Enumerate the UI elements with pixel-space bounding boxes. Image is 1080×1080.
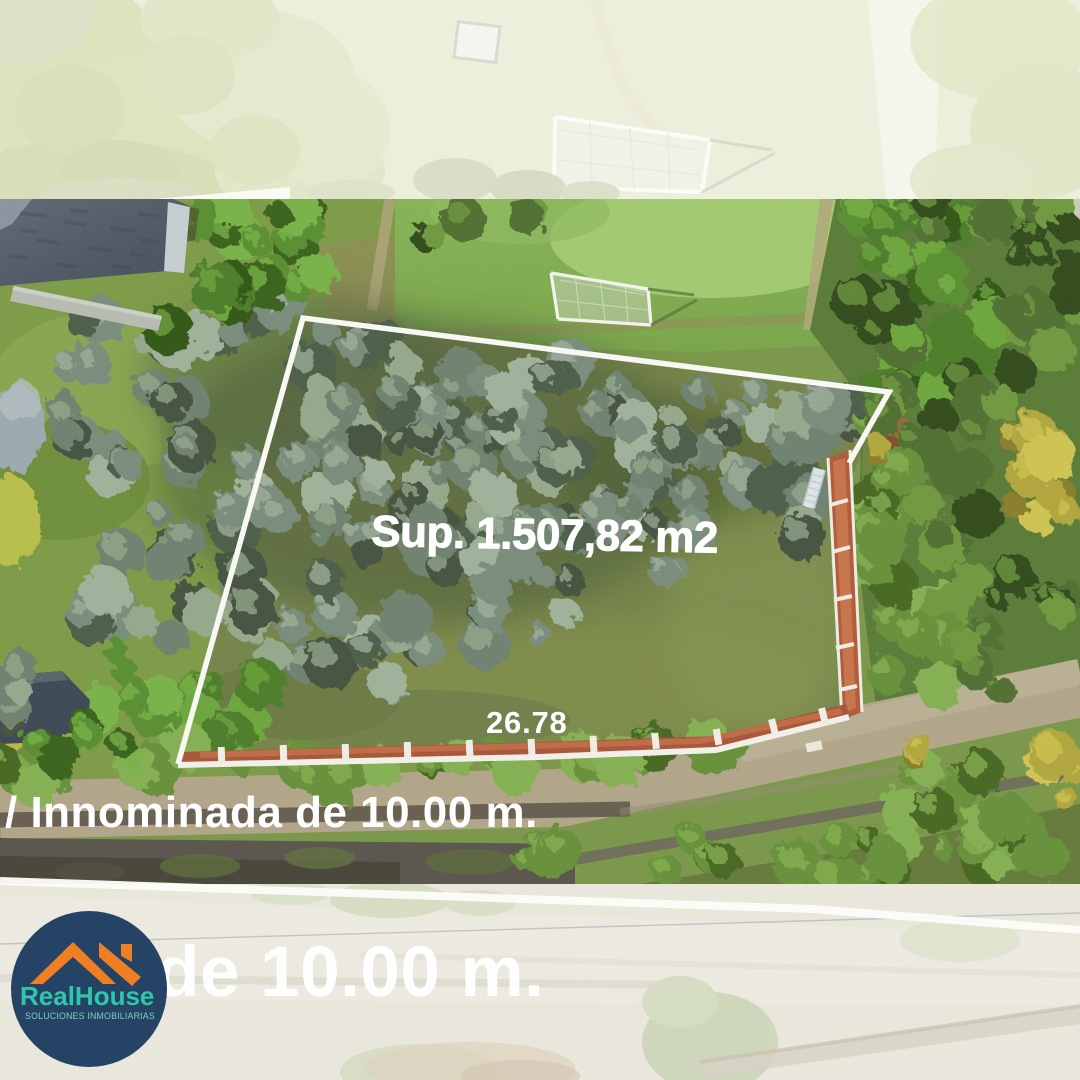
svg-text:SOLUCIONES INMOBILIARIAS: SOLUCIONES INMOBILIARIAS	[25, 1011, 155, 1021]
svg-text:RealHouse: RealHouse	[20, 981, 154, 1011]
svg-text:26.78: 26.78	[486, 705, 568, 740]
svg-text:/ Innominada de 10.00 m.: / Innominada de 10.00 m.	[5, 788, 538, 837]
svg-text:Sup. 1.507,82 m2: Sup. 1.507,82 m2	[371, 507, 719, 563]
